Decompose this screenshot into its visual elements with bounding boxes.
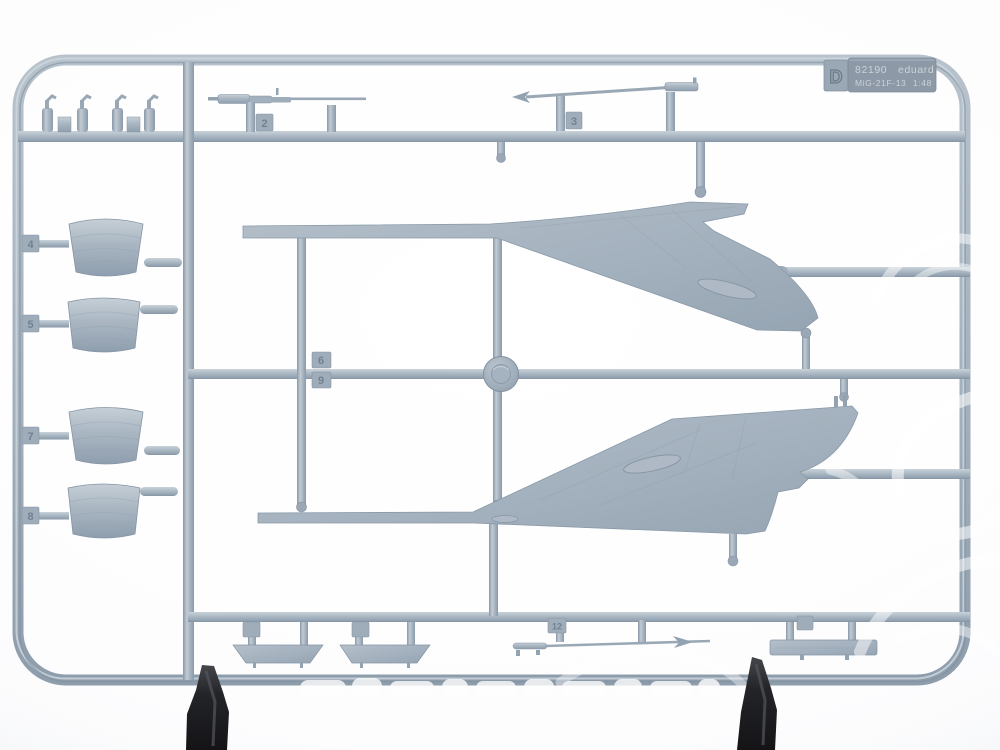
gate-bulb (728, 556, 738, 566)
lower-wing-half (258, 395, 858, 534)
top-row-small-parts: 2 3 (42, 78, 698, 133)
cylindrical-fitting (42, 96, 56, 132)
kit-number: 82190 (855, 64, 887, 76)
gate-bulb (497, 154, 506, 163)
interior-vertical-left (297, 236, 306, 507)
bottom-row-parts: 12 (233, 616, 877, 668)
watermark-curve (900, 628, 1000, 660)
drop-tank-half-1: 4 (22, 219, 182, 276)
lower-gate-center (489, 523, 498, 616)
sprue-letter: D (830, 67, 843, 87)
kit-scale: 1:48 (913, 78, 932, 88)
display-clips (186, 657, 777, 750)
gate-bulb (695, 187, 706, 198)
gate-bulb (297, 502, 307, 512)
wing-surface (243, 202, 818, 331)
part-tag: 12 (552, 622, 562, 632)
wingtip-gate-upper (696, 142, 705, 190)
part-tag: 7 (27, 431, 33, 443)
wingtip-prong (843, 395, 847, 407)
wing-small-oval (492, 516, 518, 523)
small-block-part (127, 117, 140, 132)
drop-tank-column: 4 5 7 8 (22, 219, 182, 538)
kit-subject: MiG-21F-13 (855, 78, 906, 88)
drop-tank-half-3: 7 (22, 408, 180, 465)
part-tag: 4 (27, 239, 34, 251)
tab-digit: 6 (318, 355, 324, 367)
drop-tank-half-2: 5 (22, 298, 178, 352)
cylindrical-fitting (144, 96, 158, 132)
cylindrical-fitting (77, 96, 91, 132)
fin-plate-part (340, 622, 430, 668)
top-runner (18, 131, 965, 142)
drop-tank-half-4: 8 (22, 484, 178, 538)
watermark-curve (830, 470, 880, 560)
injection-boss (484, 357, 519, 392)
watermark-curve (898, 390, 1000, 534)
part-tag: 2 (261, 118, 267, 130)
wingtip-prong (834, 396, 838, 407)
right-runner-lower (790, 469, 970, 479)
wing-surface (258, 406, 858, 534)
part-tag: 5 (27, 319, 33, 331)
upper-wing-half (243, 202, 818, 331)
sprue-id-tag: D 82190 eduard MiG-21F-13 1:48 (824, 58, 936, 92)
part-tag: 8 (27, 511, 33, 523)
boss-inner (492, 365, 511, 384)
brand-name: eduard (898, 64, 934, 76)
sprue-photo: 6 9 2 (0, 0, 1000, 750)
photo-stage: 6 9 2 (0, 0, 1000, 750)
cylindrical-fitting (112, 96, 126, 132)
pitot-vane-upper-part: 3 (512, 78, 698, 132)
upper-wing-bottom-gate (802, 334, 810, 369)
bottom-runner (188, 612, 970, 622)
small-block-part (58, 117, 71, 132)
pitot-boom-upper-part: 2 (208, 88, 366, 132)
part-tag: 3 (571, 116, 577, 128)
tab-digit: 9 (318, 375, 324, 387)
fin-plate-part (233, 622, 323, 668)
